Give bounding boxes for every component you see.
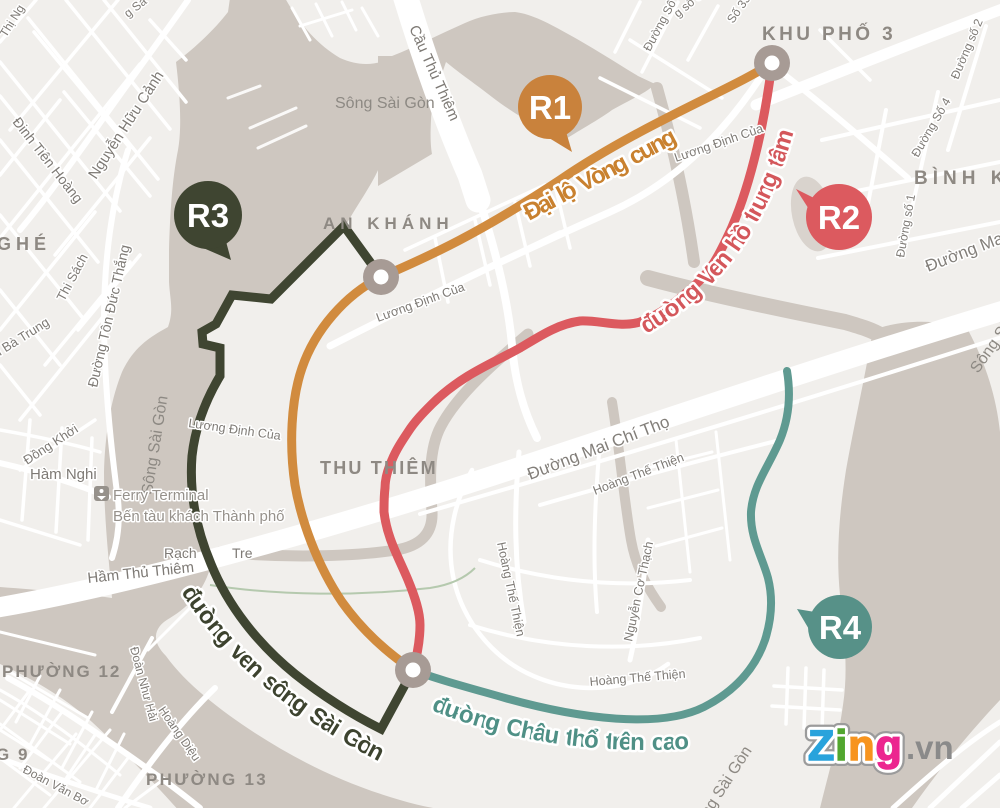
svg-text:R4: R4 bbox=[819, 609, 862, 646]
svg-text:.vn: .vn bbox=[906, 729, 954, 766]
svg-text:Bến tàu khách Thành phố: Bến tàu khách Thành phố bbox=[113, 508, 285, 525]
svg-text:R1: R1 bbox=[529, 89, 571, 126]
svg-text:R2: R2 bbox=[818, 199, 860, 236]
svg-text:Tre: Tre bbox=[232, 545, 253, 561]
svg-text:Hàm Nghi: Hàm Nghi bbox=[30, 466, 97, 483]
svg-text:AN KHÁNH: AN KHÁNH bbox=[323, 214, 454, 233]
svg-text:G 9: G 9 bbox=[0, 745, 29, 764]
svg-text:R3: R3 bbox=[187, 197, 229, 234]
svg-text:GHÉ: GHÉ bbox=[0, 233, 51, 254]
svg-text:Ferry Terminal: Ferry Terminal bbox=[113, 487, 209, 504]
svg-text:Sông Sài Gòn: Sông Sài Gòn bbox=[335, 95, 435, 112]
svg-text:Zing: Zing bbox=[808, 722, 903, 770]
svg-text:KHU PHỐ 3: KHU PHỐ 3 bbox=[762, 23, 896, 45]
svg-text:PHƯỜNG 13: PHƯỜNG 13 bbox=[146, 770, 268, 789]
svg-text:BÌNH KHÁNH: BÌNH KHÁNH bbox=[914, 167, 1000, 189]
svg-text:THU THIÊM: THU THIÊM bbox=[320, 457, 438, 478]
svg-text:PHƯỜNG 12: PHƯỜNG 12 bbox=[2, 662, 121, 681]
